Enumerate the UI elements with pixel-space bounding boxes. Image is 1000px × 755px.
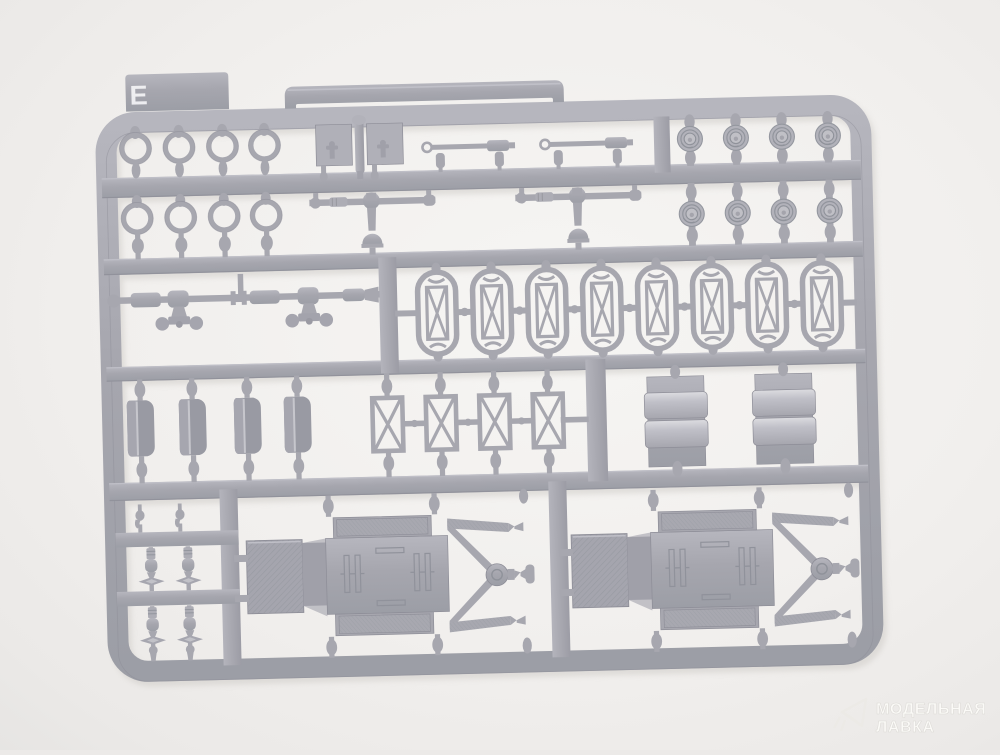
svg-text:МОДЕЛЬНАЯ: МОДЕЛЬНАЯ	[876, 701, 986, 718]
svg-text:ЛАВКА: ЛАВКА	[876, 719, 935, 736]
svg-text:E: E	[129, 80, 148, 110]
